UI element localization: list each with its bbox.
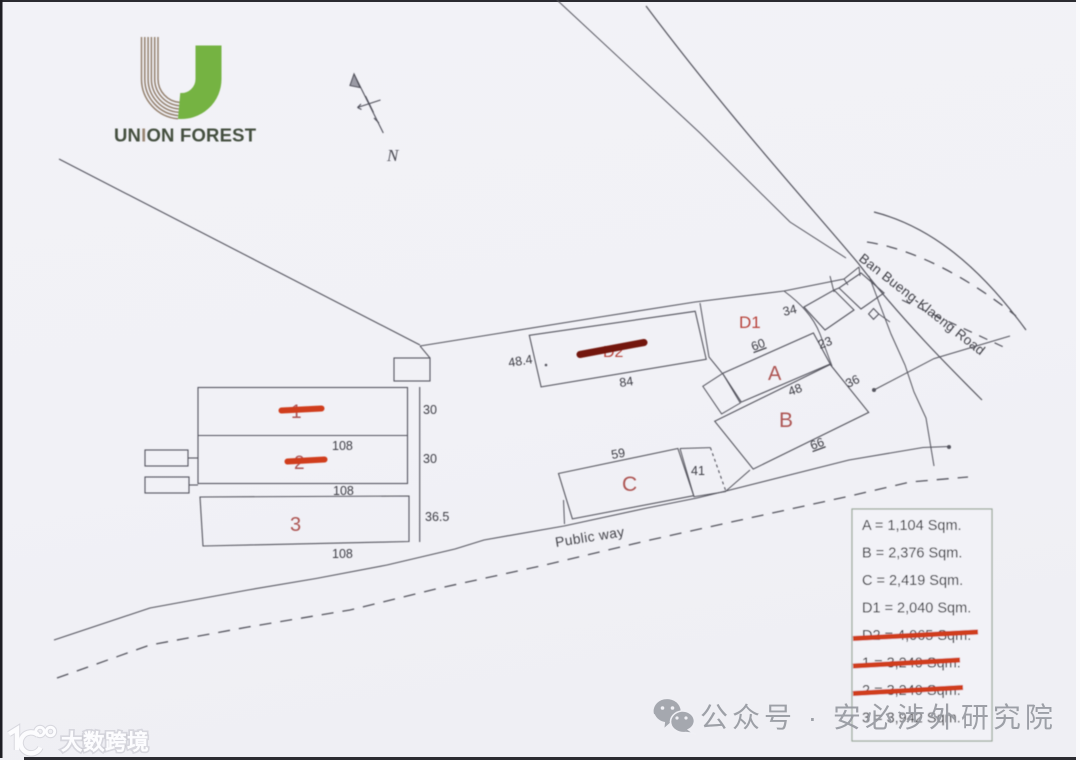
- svg-text:N: N: [386, 146, 400, 165]
- svg-text:D1: D1: [739, 313, 761, 332]
- svg-text:A: A: [768, 363, 782, 385]
- svg-text:59: 59: [610, 446, 626, 462]
- svg-text:公众号 · 安必涉外研究院: 公众号 · 安必涉外研究院: [700, 702, 1057, 733]
- svg-text:108: 108: [333, 484, 354, 498]
- svg-text:108: 108: [332, 439, 353, 453]
- svg-text:30: 30: [423, 452, 437, 466]
- svg-text:B: B: [779, 409, 793, 432]
- svg-text:UNION FOREST: UNION FOREST: [114, 125, 257, 146]
- svg-text:C = 2,419 Sqm.: C = 2,419 Sqm.: [862, 573, 963, 589]
- svg-text:C: C: [622, 473, 637, 496]
- svg-text:B = 2,376 Sqm.: B = 2,376 Sqm.: [862, 546, 962, 562]
- svg-text:30: 30: [423, 403, 437, 417]
- svg-text:108: 108: [332, 547, 353, 561]
- svg-text:36.5: 36.5: [425, 510, 449, 524]
- svg-text:3: 3: [290, 514, 301, 536]
- svg-text:41: 41: [691, 464, 705, 478]
- svg-text:D1 = 2,040 Sqm.: D1 = 2,040 Sqm.: [862, 601, 971, 617]
- svg-text:大数跨境: 大数跨境: [61, 730, 149, 755]
- svg-text:A = 1,104 Sqm.: A = 1,104 Sqm.: [862, 518, 962, 534]
- svg-text:84: 84: [618, 374, 634, 390]
